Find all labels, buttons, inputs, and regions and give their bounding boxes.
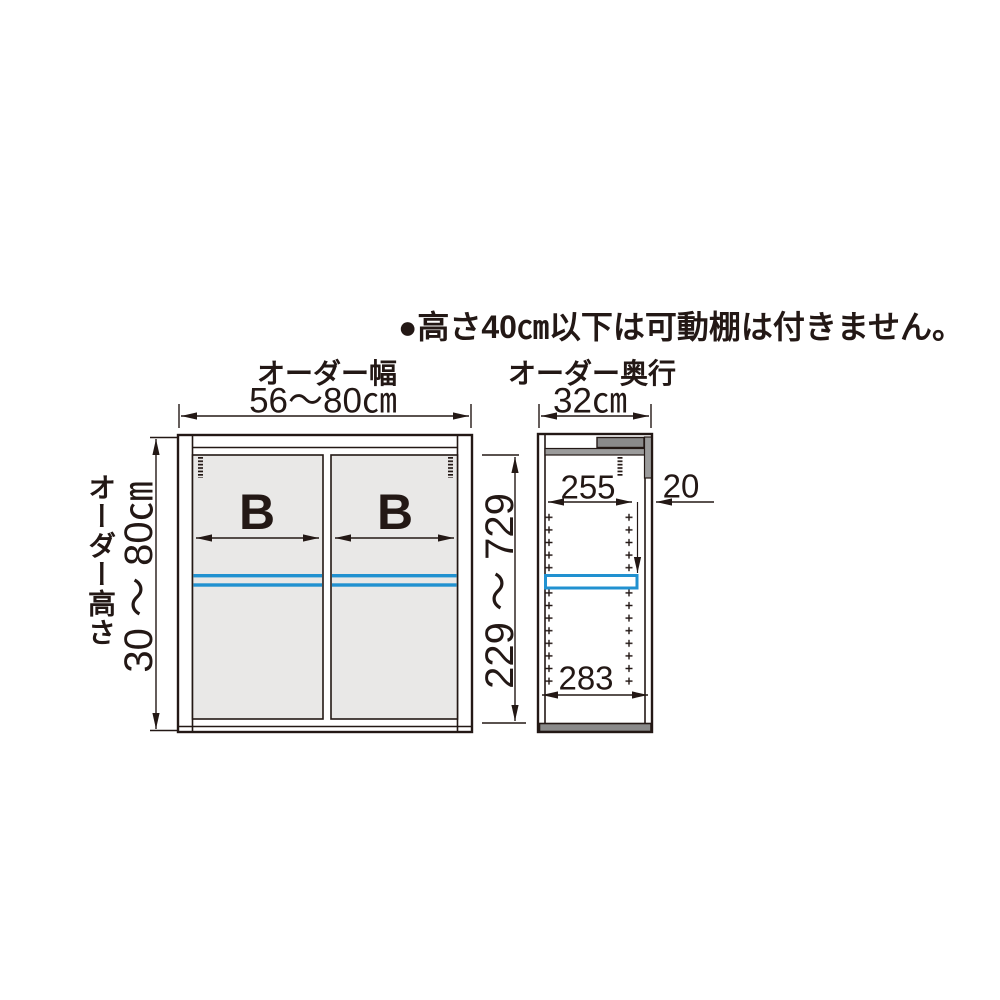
side-back-rail: [645, 437, 652, 478]
side-top-filler: [597, 438, 644, 448]
side-depth-value: 32㎝: [553, 384, 627, 419]
side-pin-holes-back: [624, 511, 634, 689]
front-height-label: オーダー高さ: [86, 473, 114, 647]
front-inner-height-value: 229 ～ 729: [480, 493, 520, 689]
side-bottom-depth-value: 283: [558, 662, 613, 695]
shelf-note: ●高さ40㎝以下は可動棚は付きません。: [398, 311, 964, 343]
front-view-drawing: [178, 435, 472, 732]
front-left-hinge: [198, 457, 203, 478]
side-shelf: [546, 576, 638, 589]
side-pin-holes-front: [544, 511, 554, 689]
side-top-panel: [545, 449, 652, 456]
side-bottom-panel: [540, 724, 652, 732]
cabinet-dimension-diagram: ●高さ40㎝以下は可動棚は付きません。 オーダー幅 56～80㎝ オーダー奥行 …: [0, 0, 1000, 1000]
right-door-width-label: B: [377, 487, 413, 537]
side-hinge: [618, 456, 623, 477]
left-door-width-label: B: [239, 487, 275, 537]
front-width-value: 56～80㎝: [249, 384, 397, 419]
side-top-depth-value: 255: [560, 471, 615, 504]
front-right-hinge: [448, 457, 453, 478]
side-back-thickness-value: 20: [663, 470, 700, 503]
front-height-value: 30 ～ 80㎝: [119, 481, 159, 672]
